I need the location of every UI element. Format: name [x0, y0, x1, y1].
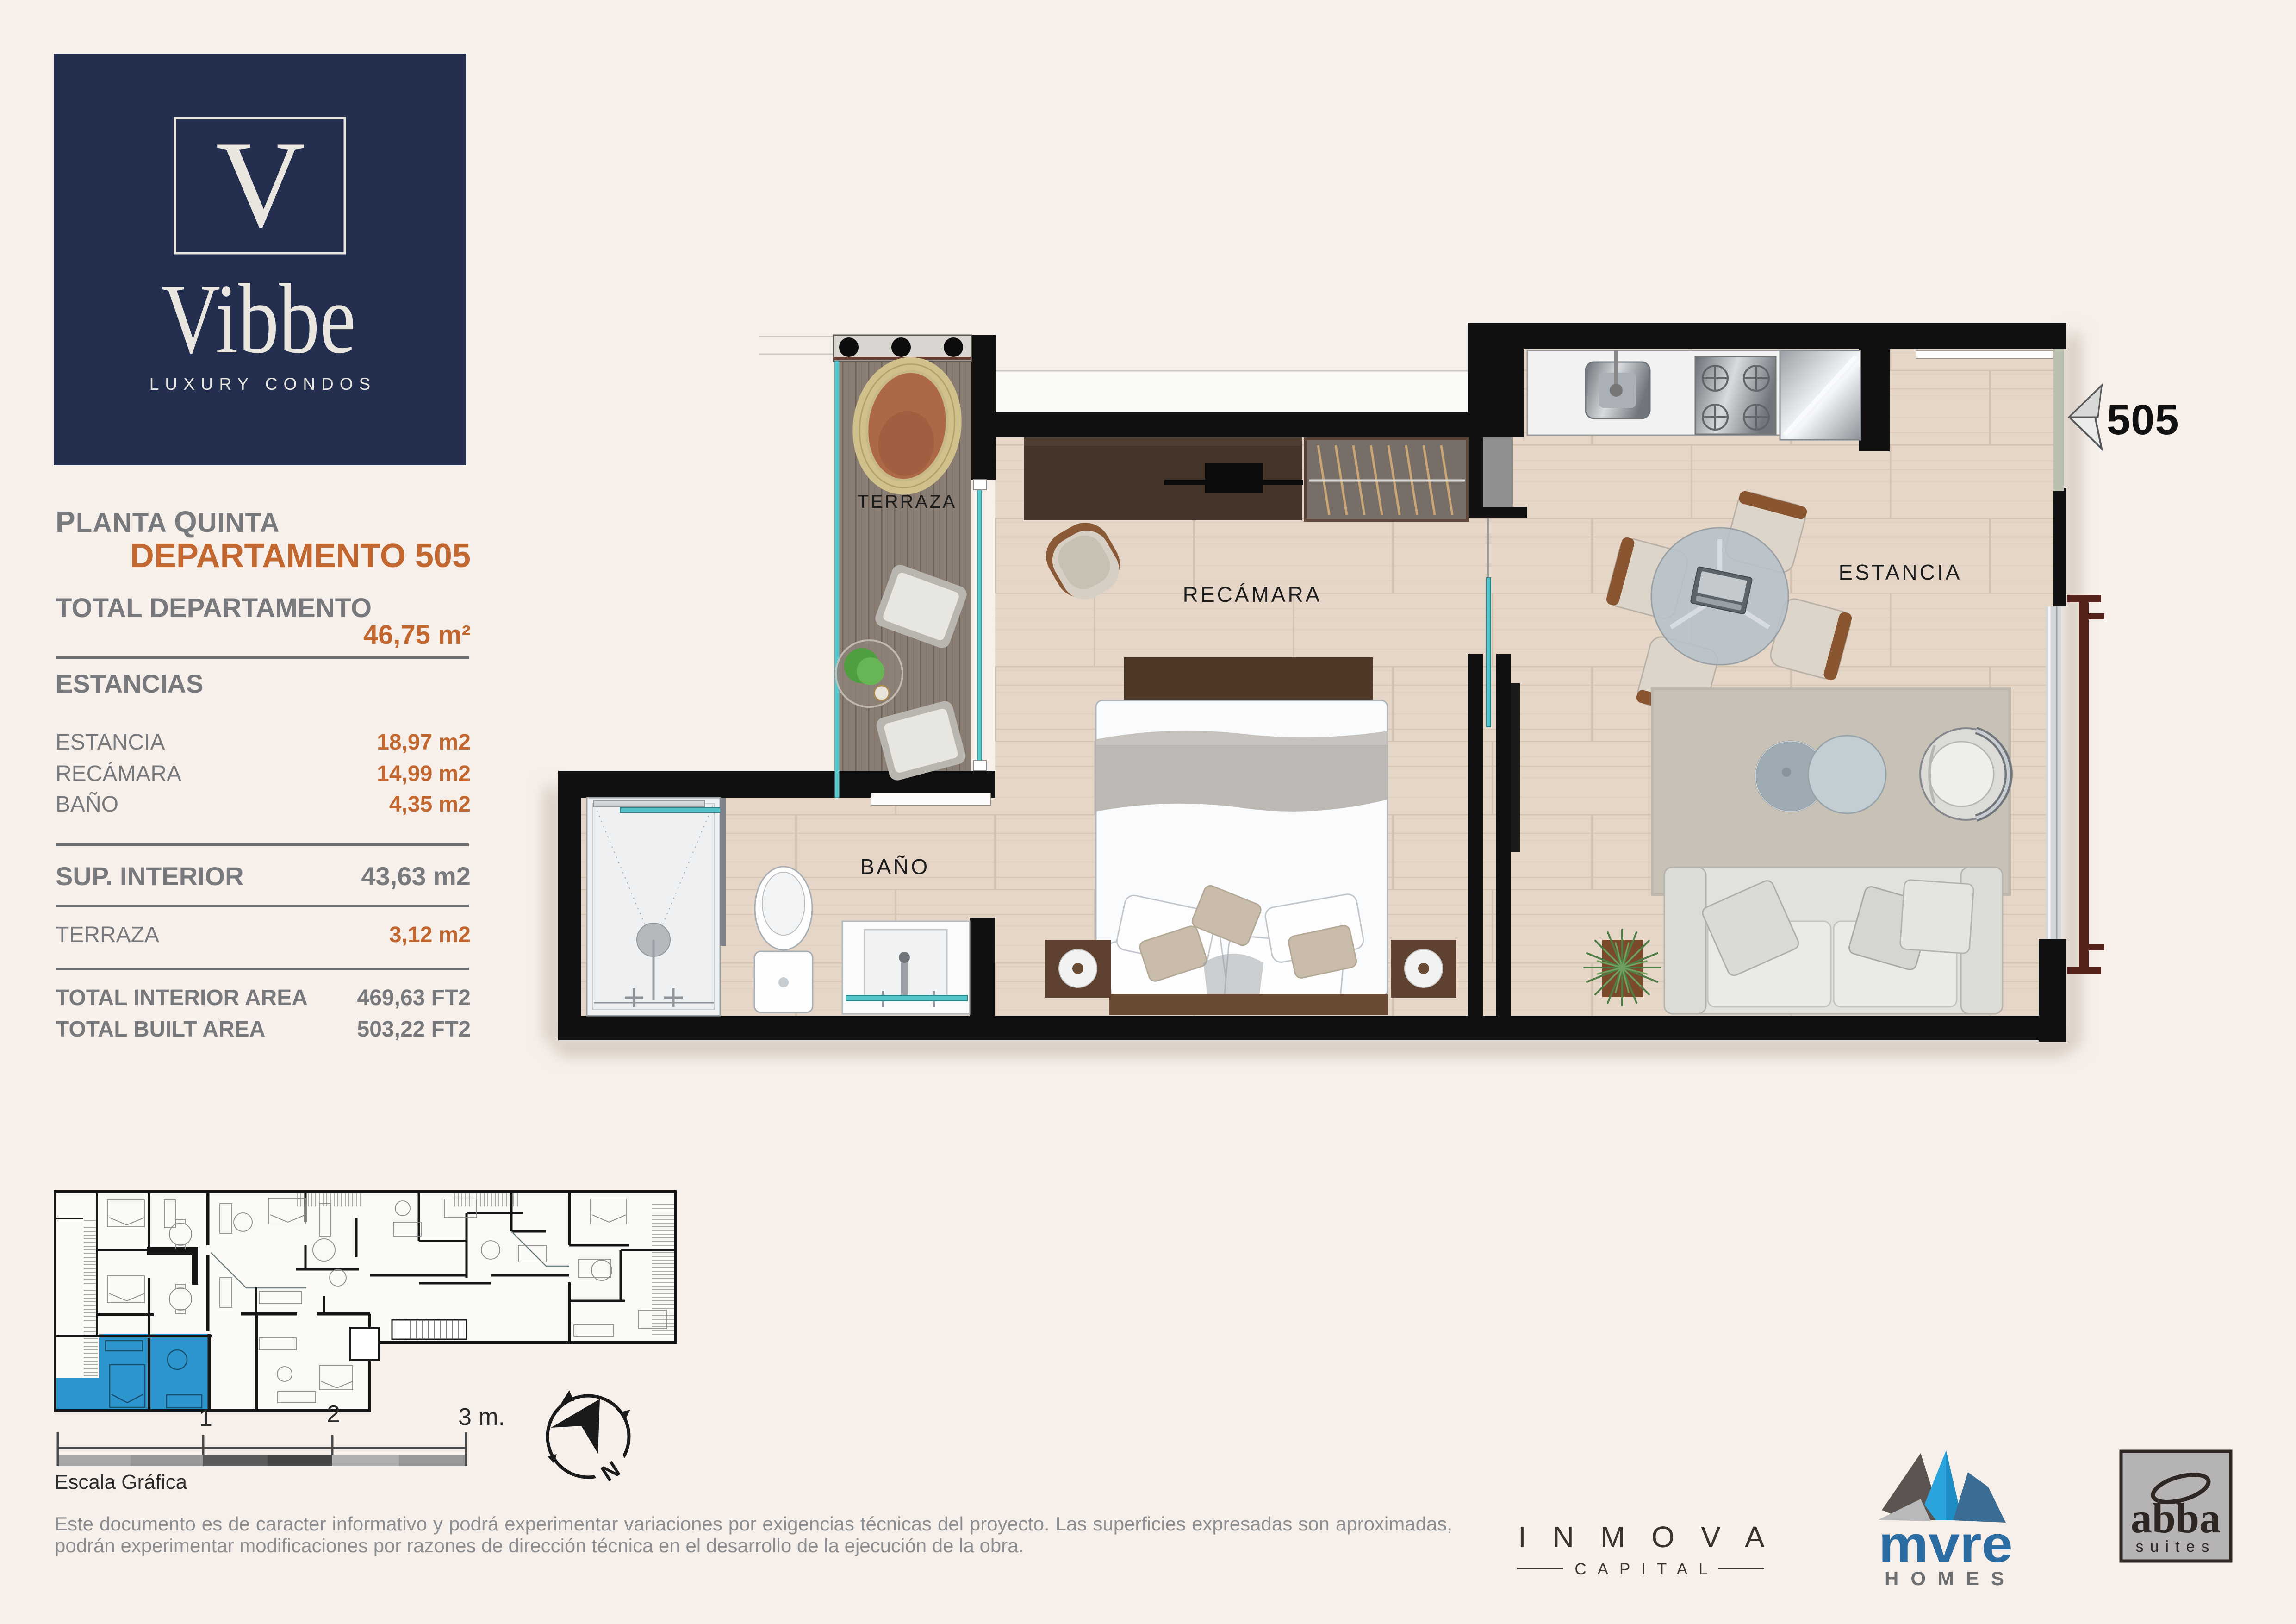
svg-text:HOMES: HOMES	[1885, 1568, 2016, 1589]
svg-text:BAÑO: BAÑO	[860, 855, 930, 879]
svg-text:Escala Gráfica: Escala Gráfica	[55, 1471, 187, 1493]
svg-text:ESTANCIA: ESTANCIA	[1839, 560, 1962, 584]
svg-text:1: 1	[199, 1405, 212, 1431]
svg-text:2: 2	[327, 1401, 340, 1428]
svg-text:abba: abba	[2131, 1494, 2221, 1542]
svg-text:RECÁMARA: RECÁMARA	[1183, 582, 1322, 606]
svg-text:suites: suites	[2136, 1538, 2216, 1555]
svg-text:TERRAZA: TERRAZA	[858, 492, 957, 512]
svg-text:3 m.: 3 m.	[458, 1404, 505, 1430]
svg-text:CAPITAL: CAPITAL	[1574, 1560, 1718, 1578]
svg-text:mvre: mvre	[1879, 1515, 2013, 1573]
svg-text:INMOVA: INMOVA	[1518, 1520, 1791, 1554]
svg-text:505: 505	[2107, 396, 2179, 443]
